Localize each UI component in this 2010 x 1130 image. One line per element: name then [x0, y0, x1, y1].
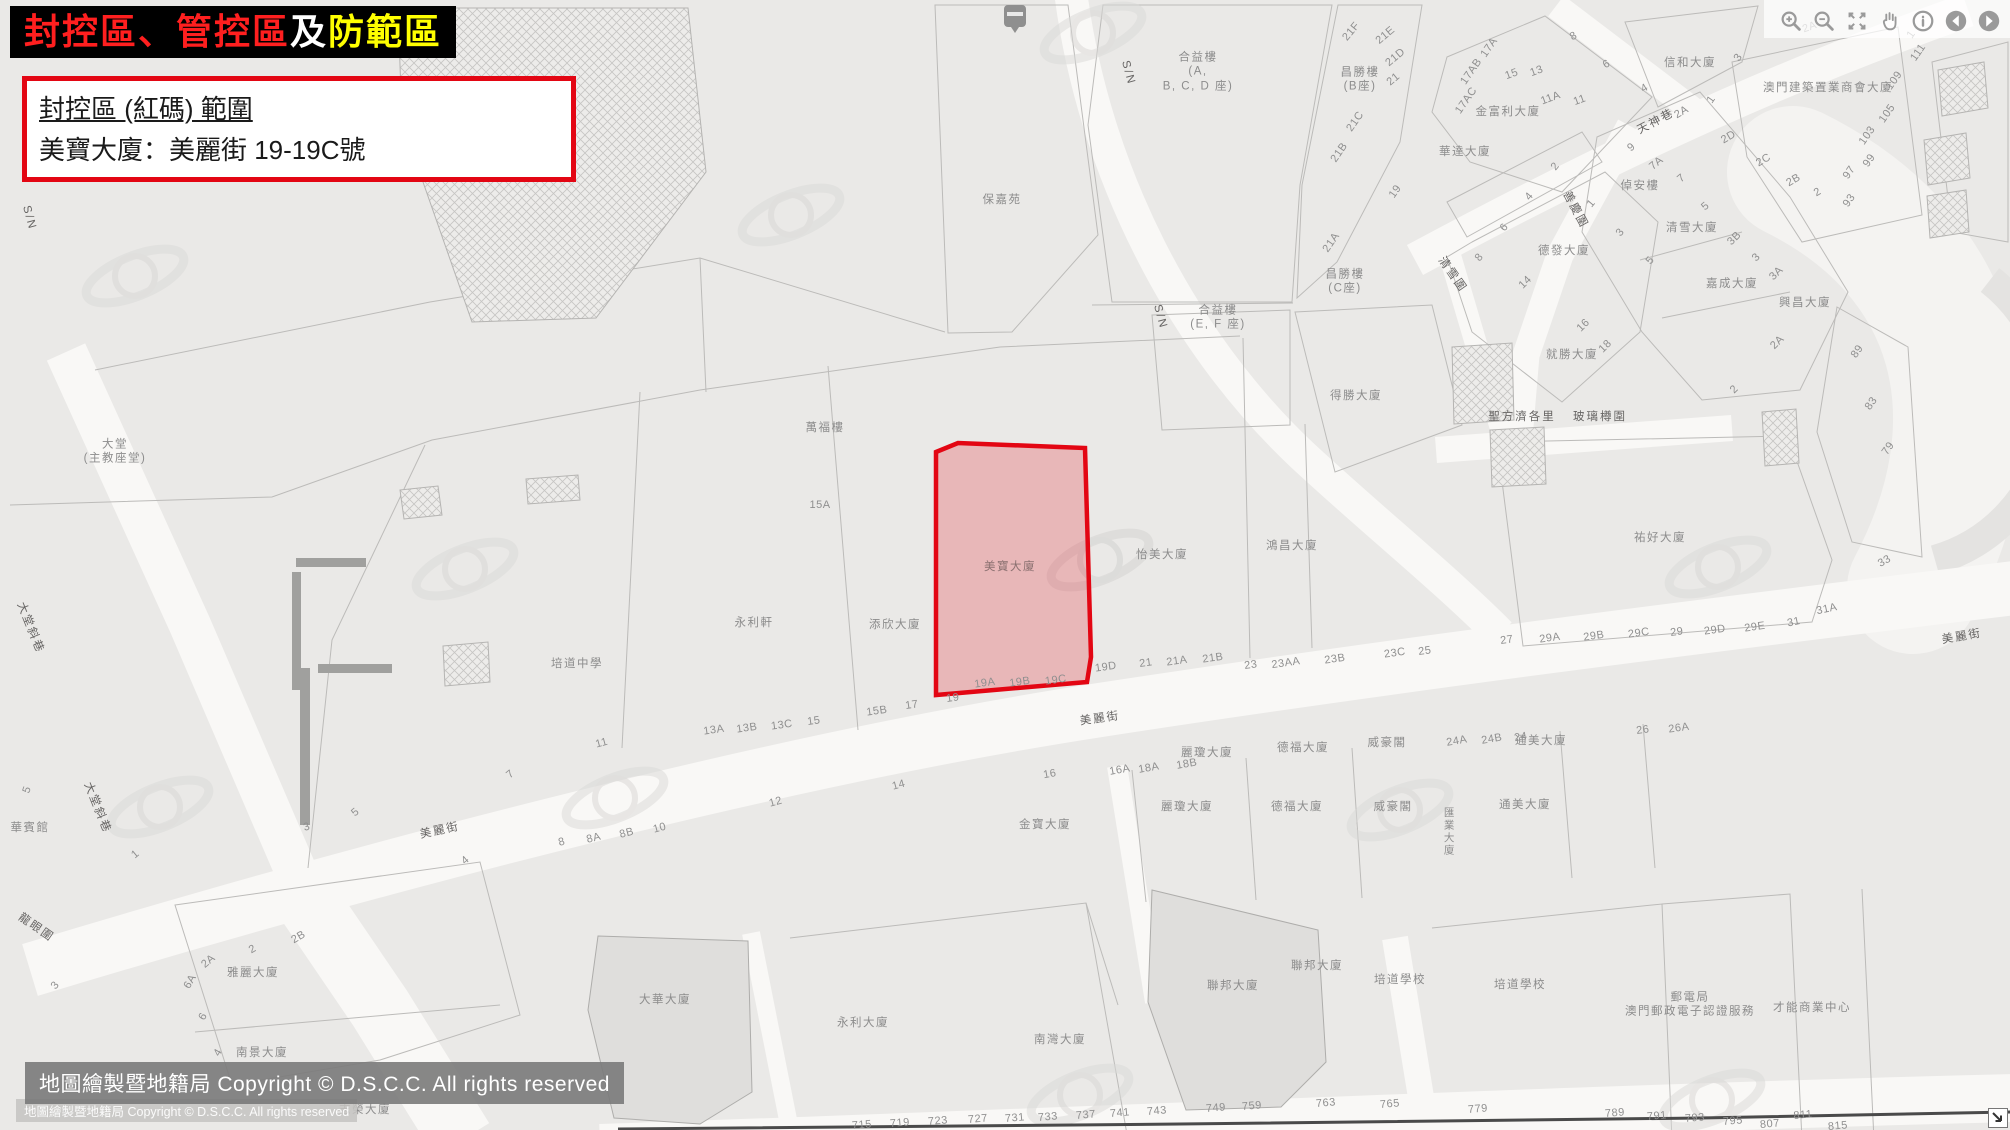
- page-title-segment: 封控區、管控區: [24, 14, 290, 50]
- lockdown-info-box: 封控區 (紅碼) 範圍 美寶大廈：美麗街 19-19C號: [22, 76, 576, 182]
- copyright-bar: 地圖繪製暨地籍局 Copyright © D.S.C.C. All rights…: [25, 1062, 624, 1104]
- page-title-segment: 防範區: [328, 14, 442, 50]
- zoom-in-icon[interactable]: [1778, 8, 1804, 34]
- resize-corner-icon[interactable]: [1988, 1108, 2008, 1128]
- expand-icon[interactable]: [1844, 8, 1870, 34]
- info-box-address: 美寶大廈：美麗街 19-19C號: [39, 130, 559, 167]
- pan-hand-icon[interactable]: [1877, 8, 1903, 34]
- zoom-out-icon[interactable]: [1811, 8, 1837, 34]
- page-title-segment: 及: [290, 14, 328, 50]
- screenshot-stage: 保嘉苑合益樓 (A, B, C, D 座)昌勝樓 (B座)昌勝樓 (C座)合益樓…: [0, 0, 2010, 1130]
- info-icon[interactable]: [1910, 8, 1936, 34]
- map-marker-icon[interactable]: [1003, 4, 1027, 34]
- back-icon[interactable]: [1943, 8, 1969, 34]
- lockdown-zone-polygon[interactable]: [936, 443, 1091, 695]
- forward-icon[interactable]: [1976, 8, 2002, 34]
- page-title: 封控區、管控區及防範區: [10, 6, 456, 58]
- info-box-heading: 封控區 (紅碼) 範圍: [39, 89, 559, 126]
- map-toolbar: [1764, 0, 2010, 38]
